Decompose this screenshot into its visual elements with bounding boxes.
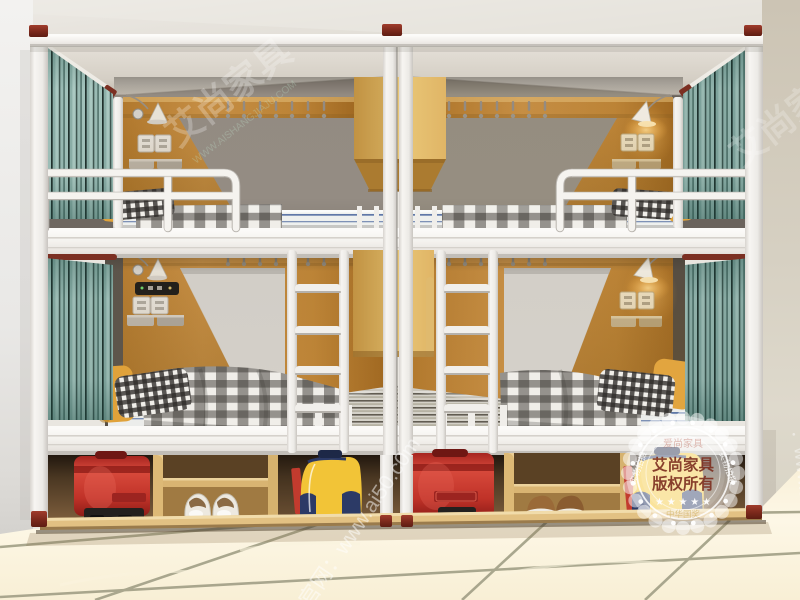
svg-text:版权所有: 版权所有 — [651, 474, 714, 493]
svg-text:艾尚家具: 艾尚家具 — [652, 455, 715, 474]
svg-text:中华国奖: 中华国奖 — [666, 509, 701, 519]
svg-text:★ ★ ★ ★ ★: ★ ★ ★ ★ ★ — [655, 497, 711, 508]
svg-text:爱尚家具: 爱尚家具 — [663, 437, 703, 450]
